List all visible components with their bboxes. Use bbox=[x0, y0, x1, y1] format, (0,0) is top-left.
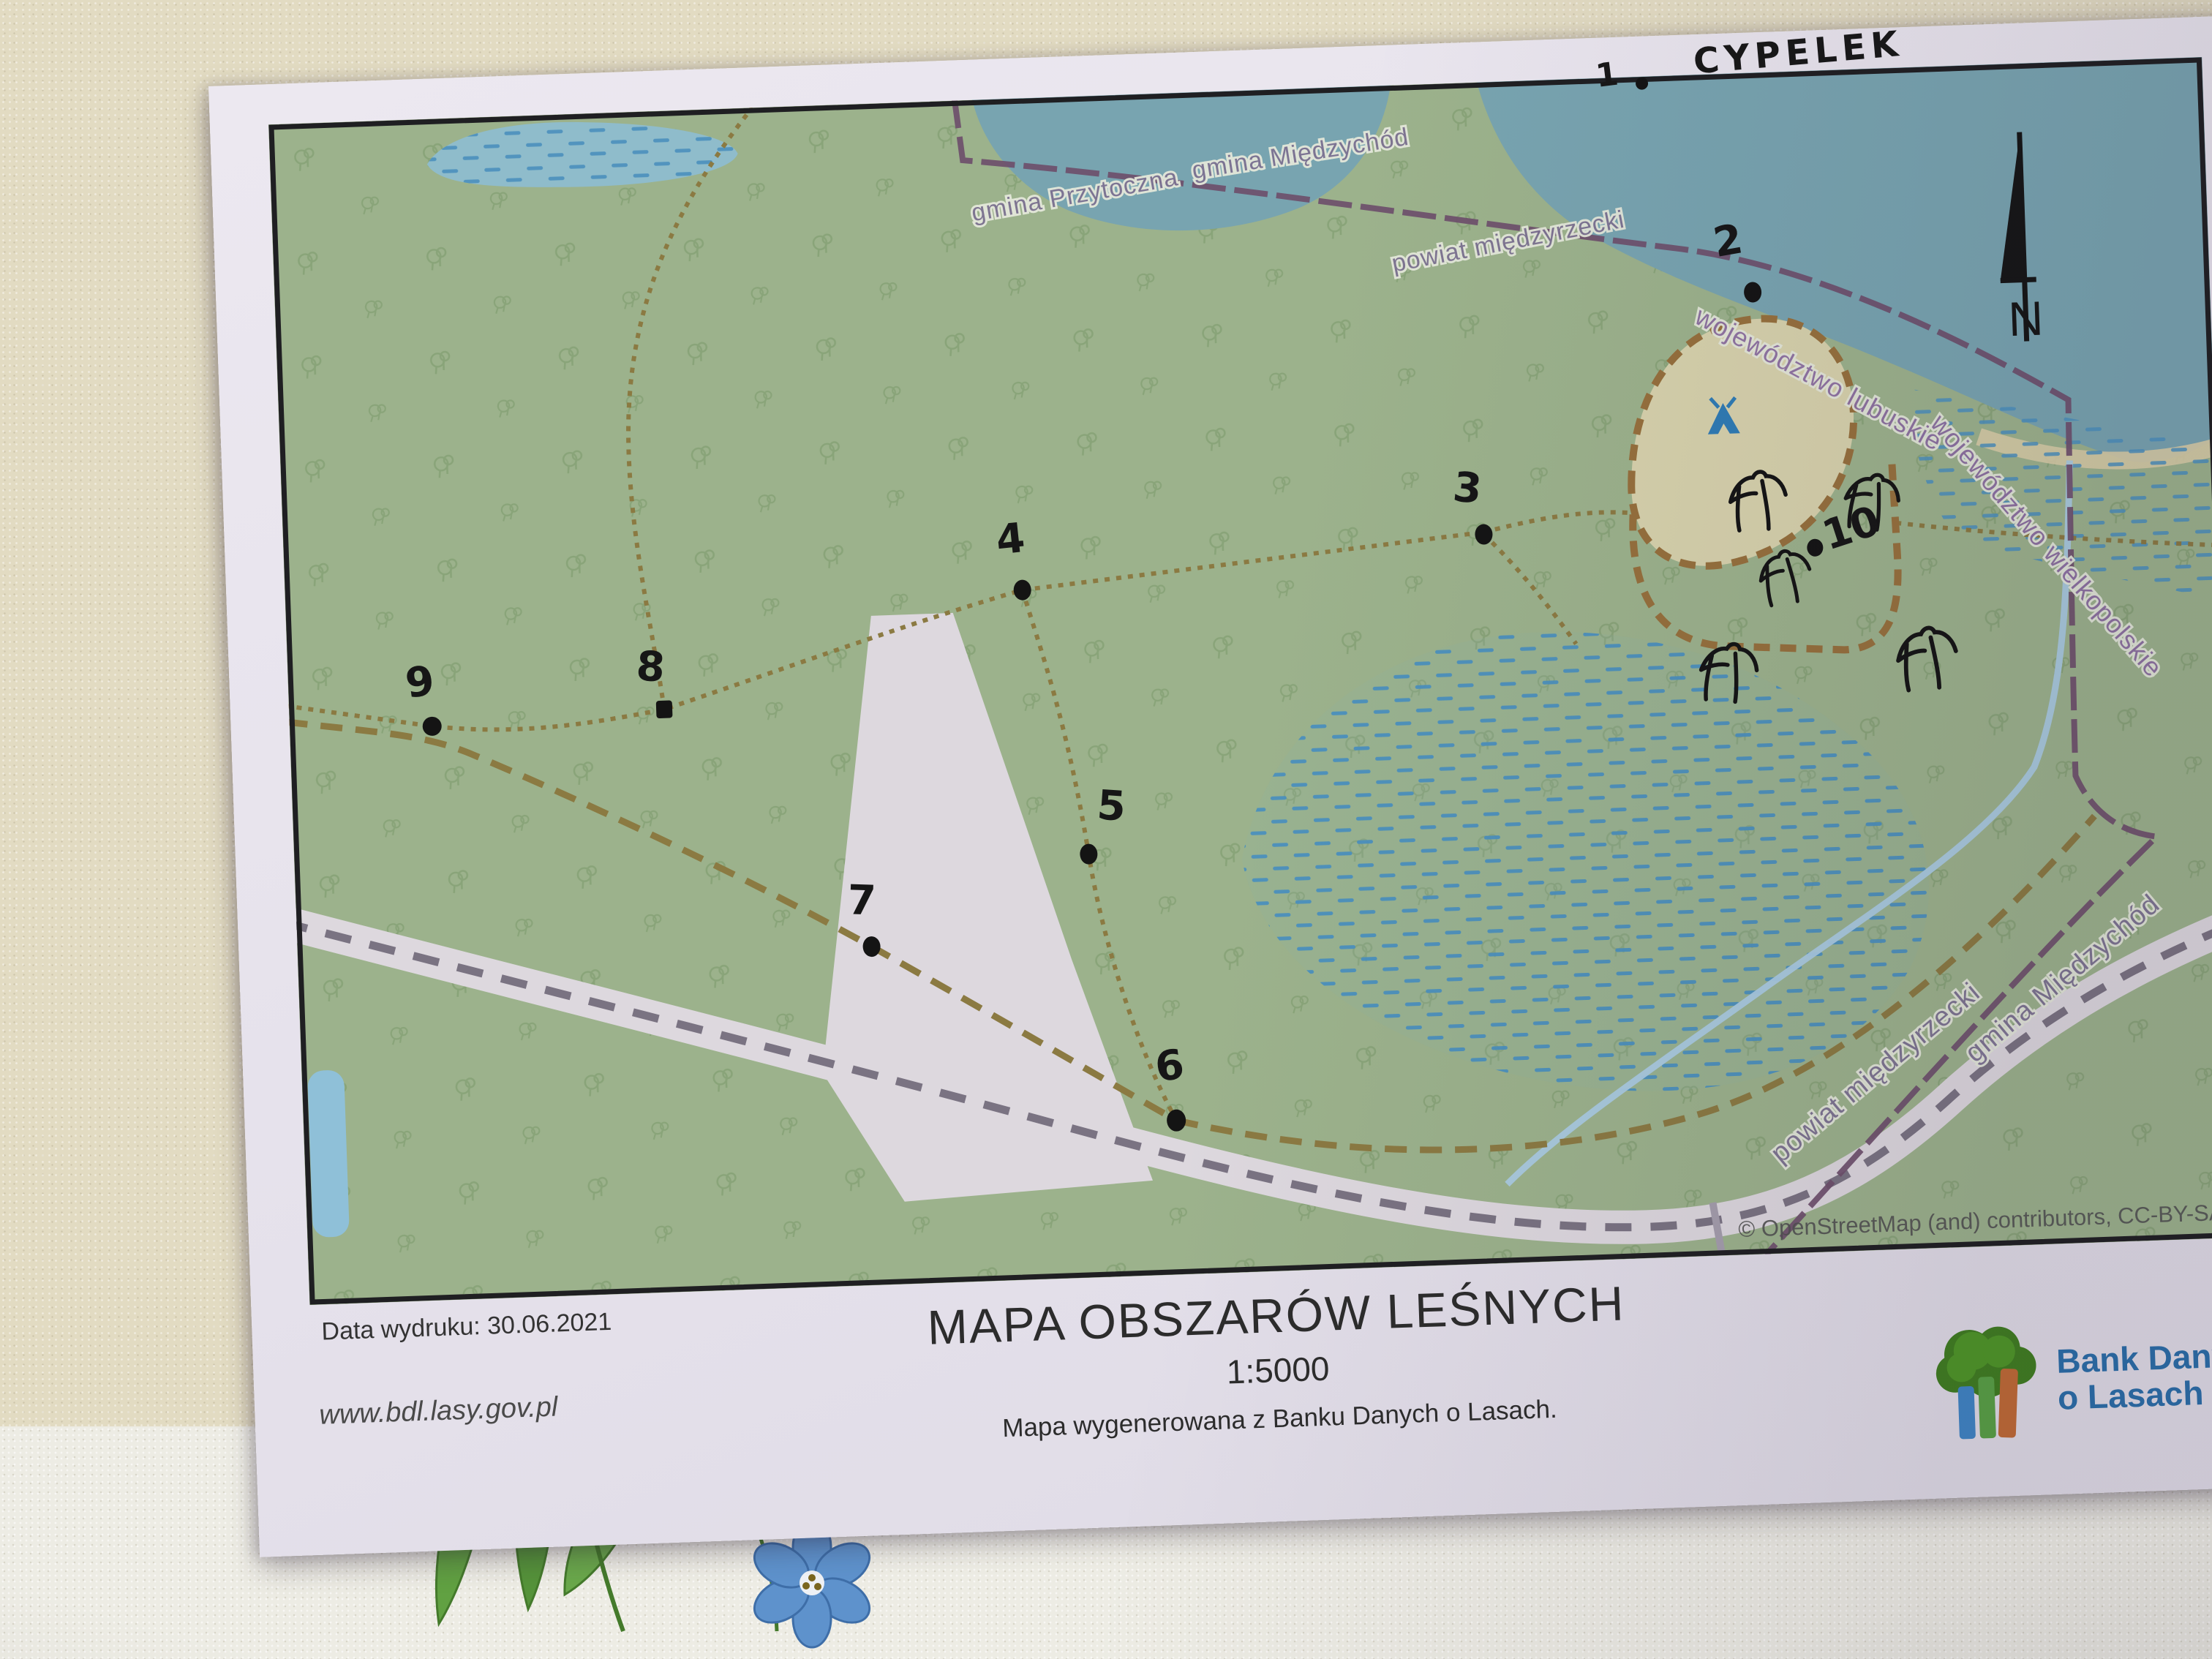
svg-text:8: 8 bbox=[635, 642, 666, 692]
north-label: N bbox=[2007, 291, 2044, 347]
paper-sheet: CYPELEK 1 bbox=[208, 15, 2212, 1557]
website-url: www.bdl.lasy.gov.pl bbox=[319, 1391, 558, 1431]
svg-text:7: 7 bbox=[847, 876, 877, 925]
logo-line2: o Lasach bbox=[2057, 1372, 2212, 1416]
pond-strip bbox=[307, 1069, 350, 1238]
print-date: Data wydruku: 30.06.2021 bbox=[321, 1308, 612, 1347]
svg-text:4: 4 bbox=[994, 514, 1028, 565]
bank-danych-o-lasach-logo: Bank Danych o Lasach bbox=[1927, 1312, 2212, 1448]
logo-line1: Bank Danych bbox=[2056, 1336, 2212, 1380]
logo-tree-icon bbox=[1927, 1319, 2049, 1447]
svg-text:5: 5 bbox=[1096, 781, 1127, 831]
map-canvas: gmina Międzychód gmina Przytoczna powiat… bbox=[268, 57, 2212, 1305]
forest-map: gmina Międzychód gmina Przytoczna powiat… bbox=[268, 57, 2212, 1305]
handwritten-point-1: 1 bbox=[1594, 56, 1621, 95]
logo-text: Bank Danych o Lasach bbox=[2056, 1336, 2212, 1416]
svg-text:3: 3 bbox=[1451, 463, 1484, 513]
title-block: MAPA OBSZARÓW LEŚNYCH 1:5000 Mapa wygene… bbox=[764, 1270, 1792, 1452]
